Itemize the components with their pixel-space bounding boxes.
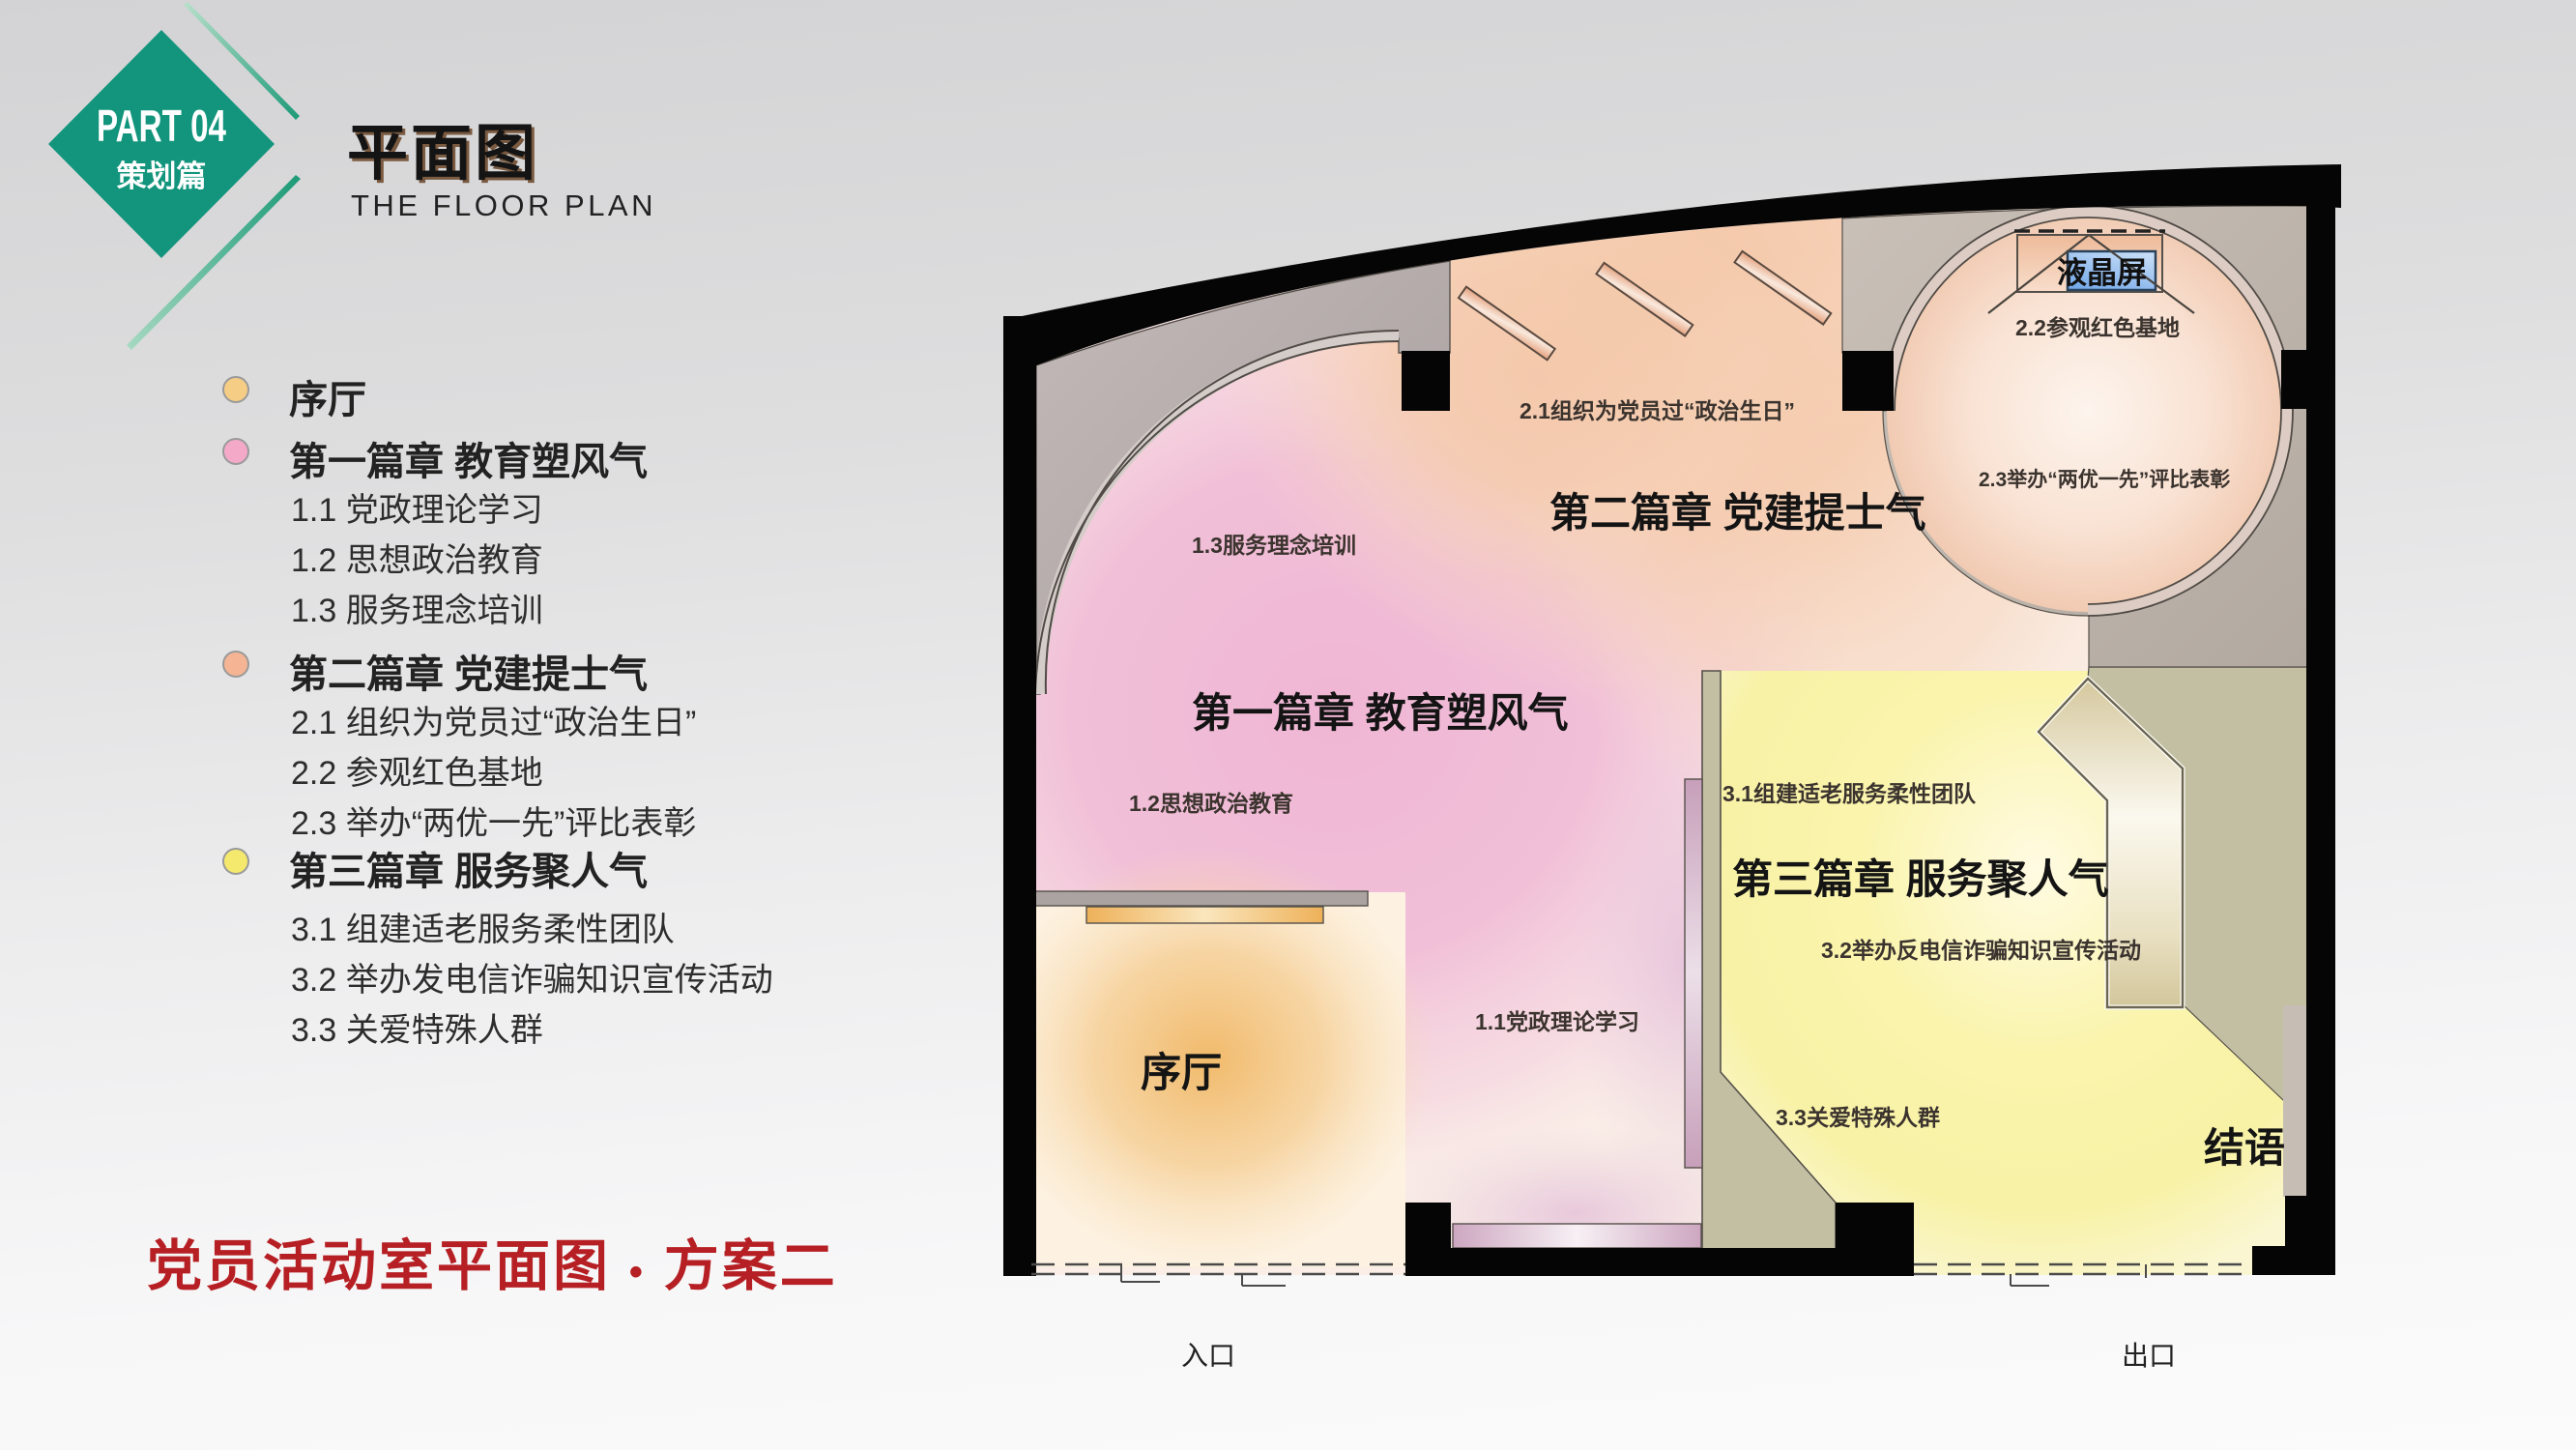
svg-text:液晶屏: 液晶屏 — [2057, 256, 2147, 290]
svg-text:1.2思想政治教育: 1.2思想政治教育 — [1129, 791, 1293, 816]
svg-text:2.2参观红色基地: 2.2参观红色基地 — [2015, 315, 2180, 340]
svg-text:结语: 结语 — [2204, 1125, 2285, 1171]
svg-text:出口: 出口 — [2122, 1341, 2176, 1371]
svg-text:2.1组织为党员过“政治生日”: 2.1组织为党员过“政治生日” — [1520, 398, 1795, 423]
svg-text:入口: 入口 — [1181, 1341, 1235, 1371]
svg-text:2.3举办“两优一先”评比表彰: 2.3举办“两优一先”评比表彰 — [1979, 468, 2230, 491]
svg-text:3.2举办反电信诈骗知识宣传活动: 3.2举办反电信诈骗知识宣传活动 — [1821, 938, 2141, 963]
svg-text:3.3关爱特殊人群: 3.3关爱特殊人群 — [1776, 1105, 1940, 1130]
svg-text:序厅: 序厅 — [1141, 1050, 1222, 1095]
svg-text:3.1组建适老服务柔性团队: 3.1组建适老服务柔性团队 — [1722, 781, 1977, 806]
svg-text:第三篇章 服务聚人气: 第三篇章 服务聚人气 — [1732, 856, 2109, 902]
svg-text:第二篇章 党建提士气: 第二篇章 党建提士气 — [1549, 490, 1926, 536]
svg-text:1.3服务理念培训: 1.3服务理念培训 — [1192, 533, 1356, 558]
svg-text:1.1党政理论学习: 1.1党政理论学习 — [1475, 1009, 1639, 1034]
svg-text:第一篇章 教育塑风气: 第一篇章 教育塑风气 — [1192, 690, 1569, 736]
